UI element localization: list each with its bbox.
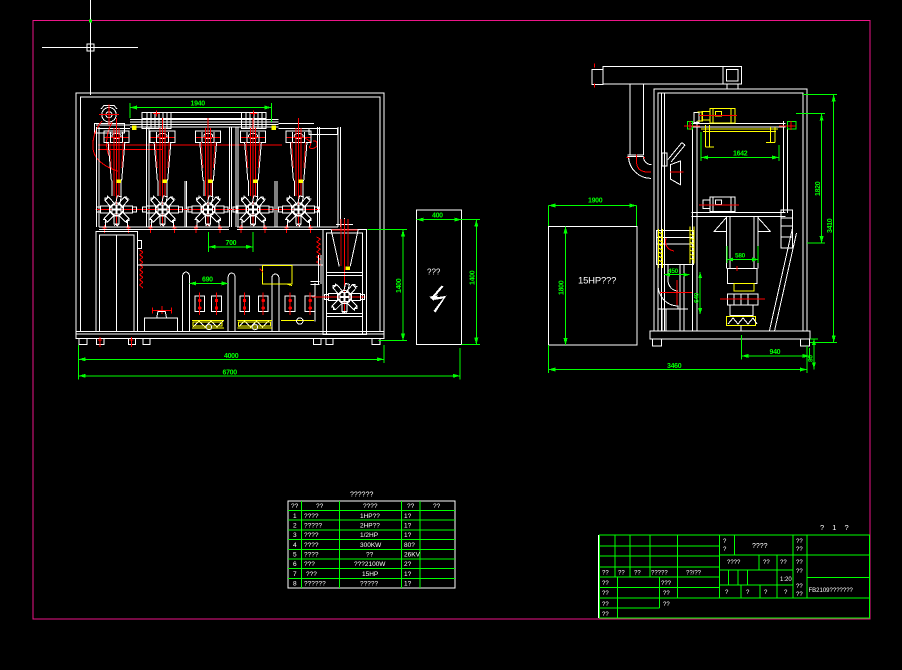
svg-text:??: ??	[663, 602, 670, 608]
svg-text:??: ??	[602, 591, 609, 597]
svg-text:?????: ?????	[651, 571, 668, 577]
svg-text:690: 690	[202, 276, 213, 283]
svg-text:1400: 1400	[470, 270, 477, 285]
svg-text:1?: 1?	[404, 532, 412, 539]
svg-text:??: ??	[366, 552, 374, 559]
svg-text:????: ????	[304, 532, 319, 539]
svg-text:3: 3	[293, 532, 297, 539]
svg-text:1?: 1?	[404, 581, 412, 588]
svg-text:6: 6	[293, 561, 297, 568]
svg-text:1HP??: 1HP??	[360, 513, 380, 520]
svg-text:??: ??	[796, 592, 803, 598]
svg-text:80: 80	[808, 355, 815, 362]
svg-text:1/2HP: 1/2HP	[360, 532, 378, 539]
svg-text:??: ??	[780, 560, 787, 566]
svg-text:7: 7	[293, 571, 297, 578]
svg-text:??: ??	[796, 547, 803, 553]
svg-text:4000: 4000	[224, 353, 239, 360]
svg-text:8: 8	[293, 581, 297, 588]
svg-text:1: 1	[293, 513, 297, 520]
svg-text:????: ????	[752, 543, 768, 550]
svg-text:??: ??	[796, 539, 803, 545]
svg-text:1642: 1642	[733, 150, 748, 157]
svg-text:450: 450	[668, 268, 679, 275]
svg-text:?????: ?????	[360, 581, 378, 588]
svg-text:??????: ??????	[304, 581, 326, 588]
svg-text:??: ??	[796, 584, 803, 590]
svg-text:1820: 1820	[815, 181, 822, 196]
svg-text:??: ??	[291, 503, 299, 510]
svg-text:???: ???	[306, 571, 317, 578]
svg-text:??: ??	[796, 569, 803, 575]
svg-text:2?: 2?	[404, 561, 412, 568]
svg-text:15HP: 15HP	[362, 571, 378, 578]
svg-text:??: ??	[634, 571, 641, 577]
svg-text:??: ??	[602, 612, 609, 618]
svg-text:1940: 1940	[191, 101, 206, 108]
svg-text:????: ????	[304, 513, 319, 520]
svg-text:700: 700	[226, 240, 237, 247]
svg-text:??: ??	[407, 503, 415, 510]
svg-text:??: ??	[602, 571, 609, 577]
svg-text:1:20: 1:20	[780, 577, 792, 583]
svg-text:??: ??	[316, 503, 324, 510]
svg-text:5: 5	[293, 552, 297, 559]
svg-text:????: ????	[304, 542, 319, 549]
svg-text:??: ??	[602, 581, 609, 587]
svg-text:1400: 1400	[396, 278, 403, 293]
svg-text:1?: 1?	[404, 523, 412, 530]
svg-text:??: ??	[763, 560, 770, 566]
svg-text:80?: 80?	[404, 542, 415, 549]
svg-text:??: ??	[618, 571, 625, 577]
svg-text:1?: 1?	[404, 513, 412, 520]
svg-text:1?: 1?	[404, 571, 412, 578]
svg-text:???: ???	[304, 561, 315, 568]
svg-text:? 1 ?: ? 1 ?	[820, 523, 852, 532]
svg-text:26KV: 26KV	[404, 552, 421, 559]
svg-text:???: ???	[661, 581, 672, 587]
svg-text:?????: ?????	[304, 523, 322, 530]
svg-text:940: 940	[770, 349, 781, 356]
svg-text:15HP???: 15HP???	[578, 276, 616, 287]
svg-text:1800: 1800	[559, 280, 566, 295]
svg-text:???2100W: ???2100W	[354, 561, 386, 568]
svg-text:??/??: ??/??	[686, 571, 702, 577]
svg-text:3460: 3460	[667, 363, 682, 370]
svg-text:580: 580	[735, 253, 746, 260]
svg-text:???: ???	[427, 268, 441, 277]
svg-text:FB2109???????: FB2109???????	[809, 588, 854, 594]
svg-text:2: 2	[293, 523, 297, 530]
svg-text:3410: 3410	[827, 218, 834, 233]
svg-text:??: ??	[796, 560, 803, 566]
svg-text:6700: 6700	[223, 370, 238, 377]
svg-text:????: ????	[304, 552, 319, 559]
svg-text:????: ????	[363, 503, 378, 510]
svg-text:400: 400	[432, 213, 443, 220]
svg-text:1900: 1900	[588, 198, 603, 205]
svg-text:??: ??	[433, 503, 441, 510]
svg-text:????: ????	[727, 560, 741, 566]
svg-text:4: 4	[293, 542, 297, 549]
svg-text:2HP??: 2HP??	[360, 523, 380, 530]
svg-text:300KW: 300KW	[360, 542, 382, 549]
svg-text:??: ??	[602, 602, 609, 608]
svg-text:??: ??	[663, 591, 670, 597]
svg-text:640: 640	[694, 292, 701, 303]
svg-text:??????: ??????	[350, 492, 373, 499]
